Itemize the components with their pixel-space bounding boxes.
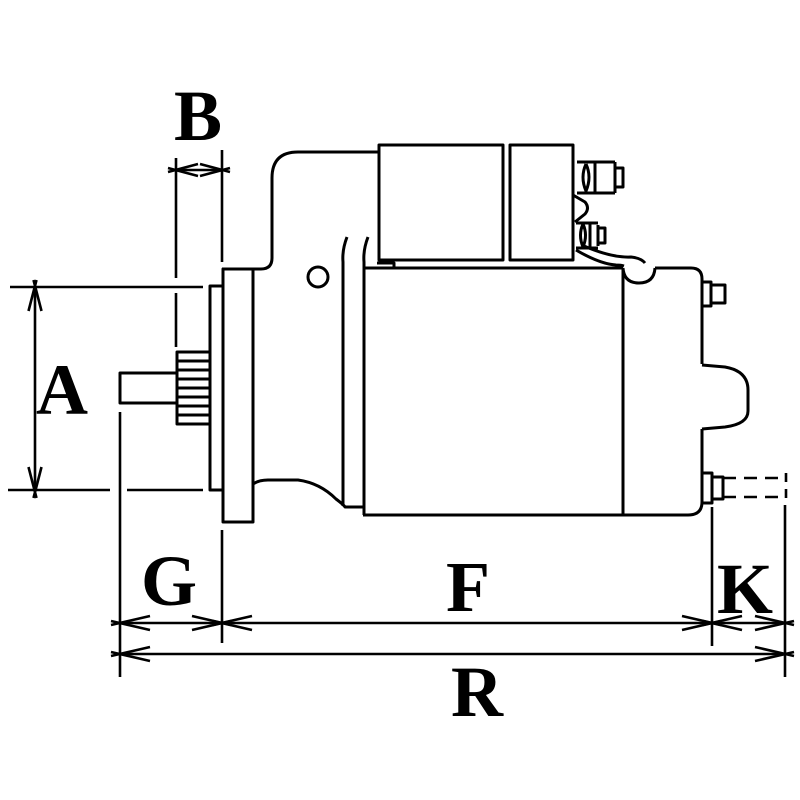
solenoid-boot-edge xyxy=(573,195,588,222)
solenoid-terminal-small xyxy=(576,223,605,248)
dim-label-F: F xyxy=(446,547,490,627)
mounting-flange xyxy=(210,269,253,522)
dimension-F: F xyxy=(213,507,721,646)
dim-label-G: G xyxy=(141,541,197,621)
dim-label-A: A xyxy=(36,350,88,430)
dimension-R: R xyxy=(111,647,794,732)
motor-body xyxy=(363,268,702,515)
dimension-K: K xyxy=(703,505,794,677)
solenoid xyxy=(377,145,573,269)
bolt-projection-dashed xyxy=(723,473,786,503)
pinion-shaft xyxy=(120,373,177,403)
dim-label-R: R xyxy=(451,652,504,732)
technical-drawing-canvas: A B G F K R xyxy=(0,0,800,800)
solenoid-terminal-large xyxy=(577,162,623,193)
dimension-A: A xyxy=(8,280,203,498)
dim-label-B: B xyxy=(174,76,222,156)
rear-bolt-lower xyxy=(702,473,723,503)
pinion-gear xyxy=(177,352,211,424)
dim-label-K: K xyxy=(717,549,773,629)
inspection-hole xyxy=(308,267,328,287)
starter-motor-dimensional-drawing: A B G F K R xyxy=(0,0,800,800)
bearing-boss xyxy=(702,365,748,429)
rear-bolt-upper xyxy=(702,282,725,306)
